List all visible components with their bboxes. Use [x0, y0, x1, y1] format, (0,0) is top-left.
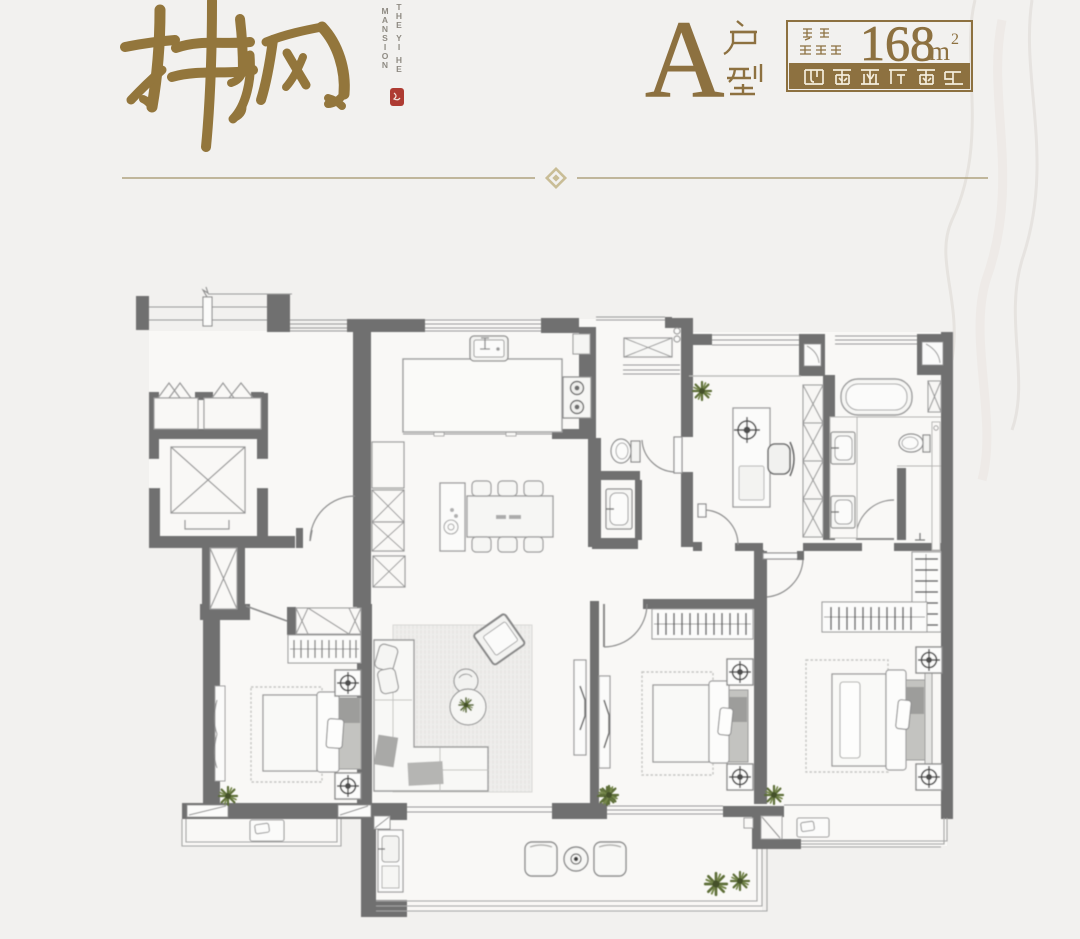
svg-text:m: m	[929, 36, 950, 66]
svg-text:E: E	[396, 64, 402, 74]
svg-text:N: N	[382, 60, 388, 70]
svg-text:A: A	[645, 0, 724, 120]
svg-text:168: 168	[860, 15, 935, 71]
svg-text:I: I	[398, 42, 400, 52]
svg-text:E: E	[396, 20, 402, 30]
svg-text:2: 2	[951, 31, 959, 48]
